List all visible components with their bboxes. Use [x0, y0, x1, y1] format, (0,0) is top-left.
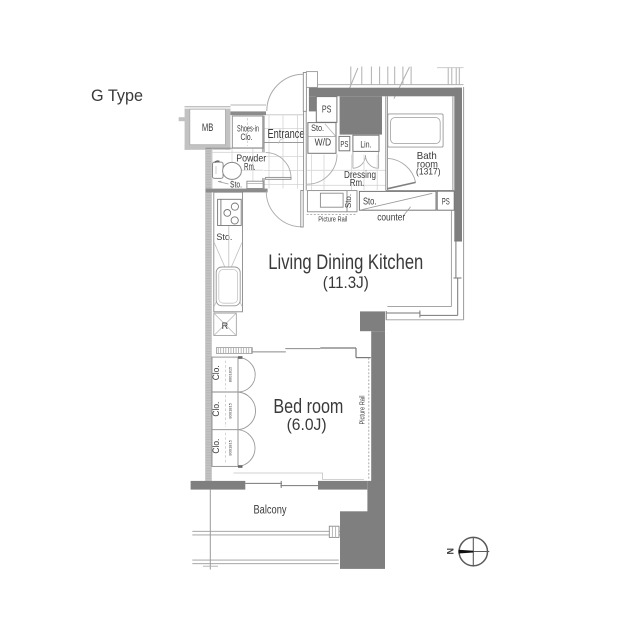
svg-text:MB: MB — [202, 122, 214, 134]
svg-text:Sto.: Sto. — [216, 232, 232, 242]
svg-text:Rm.: Rm. — [244, 161, 256, 173]
svg-text:Lin.: Lin. — [360, 140, 371, 151]
svg-text:R: R — [222, 321, 229, 331]
svg-text:Picture Rail: Picture Rail — [318, 214, 347, 223]
svg-text:Balcony: Balcony — [254, 505, 287, 517]
svg-text:N: N — [446, 548, 456, 555]
svg-text:Picture Rail: Picture Rail — [357, 395, 366, 424]
svg-text:Living Dining Kitchen: Living Dining Kitchen — [268, 251, 423, 274]
svg-text:(1317): (1317) — [416, 167, 441, 177]
svg-text:8001815: 8001815 — [228, 402, 233, 418]
svg-text:G Type: G Type — [91, 87, 143, 105]
svg-text:Clo.: Clo. — [211, 365, 222, 380]
svg-text:Entrance: Entrance — [268, 127, 305, 141]
svg-text:Sto.: Sto. — [344, 194, 353, 208]
svg-text:Clo.: Clo. — [241, 132, 253, 143]
svg-text:8001815: 8001815 — [228, 439, 233, 455]
svg-text:(6.0J): (6.0J) — [287, 415, 327, 434]
svg-text:counter: counter — [377, 212, 405, 224]
svg-text:Clo.: Clo. — [211, 439, 222, 454]
svg-text:Clo.: Clo. — [211, 402, 222, 417]
svg-text:W/D: W/D — [315, 136, 332, 148]
svg-text:PS: PS — [442, 197, 450, 208]
svg-text:Rm.: Rm. — [350, 177, 365, 189]
svg-text:PS: PS — [340, 139, 348, 149]
svg-text:8001815: 8001815 — [228, 366, 233, 382]
svg-text:PS: PS — [322, 105, 332, 116]
svg-text:Sto.: Sto. — [363, 195, 377, 207]
svg-text:(11.3J): (11.3J) — [323, 273, 369, 292]
svg-text:Sto.: Sto. — [311, 123, 324, 133]
